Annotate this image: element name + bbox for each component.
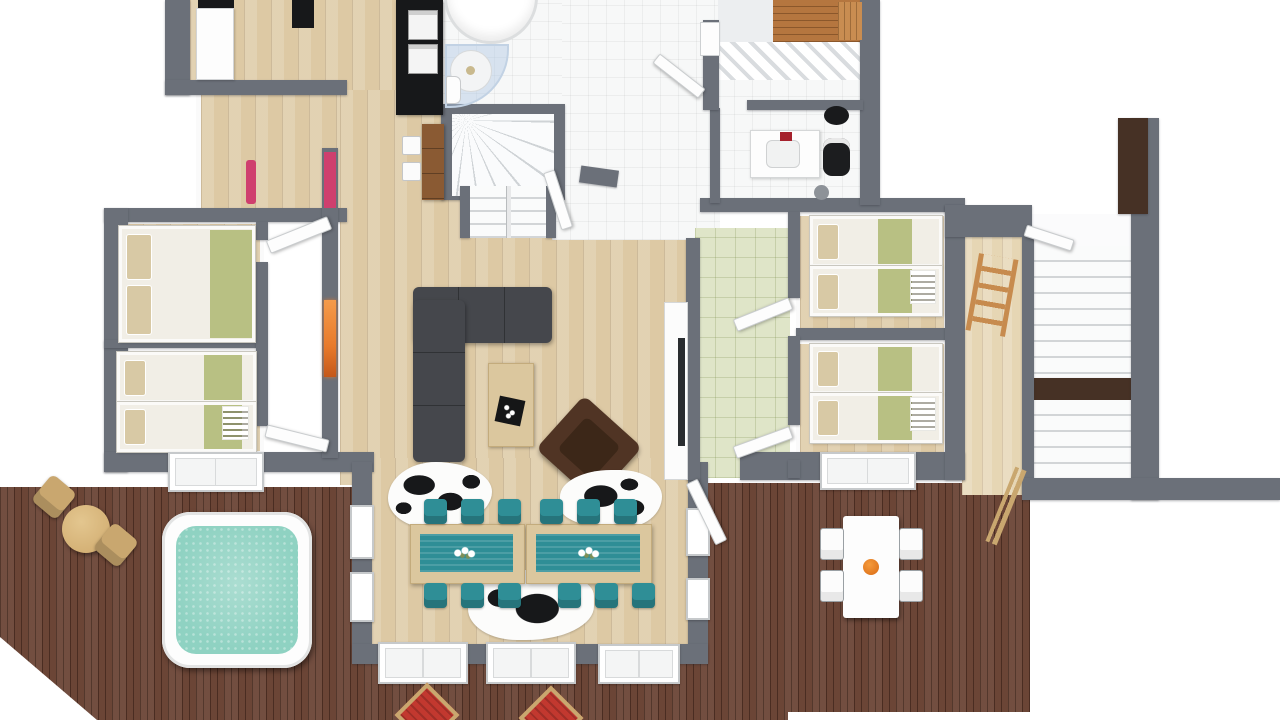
coffee-table-tray <box>495 396 526 427</box>
wall-mudroom-top <box>945 205 1032 237</box>
double-bed-blanket <box>210 230 252 338</box>
wall-pantry-bottom <box>165 80 347 95</box>
wall-rightwing-top <box>700 198 965 212</box>
dining-chair <box>424 499 447 524</box>
sofa-l-vertical <box>413 300 465 462</box>
dining-chair <box>558 583 581 608</box>
wall-bathroom-right-left <box>710 108 720 203</box>
kitchen-dishwasher <box>408 44 438 74</box>
bunk-right-top-blanket-a <box>878 219 912 264</box>
window-bench-right-bedroom <box>820 452 916 490</box>
tv-panel <box>678 338 685 446</box>
pantry-closet <box>196 8 234 80</box>
window-bay-side-right-2 <box>686 578 710 620</box>
bunk-right-top-ladder <box>910 270 936 304</box>
sauna-bench <box>838 2 862 40</box>
soap-red <box>780 132 792 141</box>
bunk-right-bottom-pillow-a <box>817 351 839 387</box>
wall-between-right-bedrooms <box>796 328 962 340</box>
bath-stool <box>814 185 829 200</box>
stair-exit-rail <box>506 186 511 238</box>
black-toilet <box>823 138 850 176</box>
upper-landing-floor <box>718 0 775 42</box>
bar-stool-2 <box>402 162 421 181</box>
entry-hall-floor <box>552 0 720 240</box>
dining-chair <box>577 499 600 524</box>
kitchen-wall-unit <box>292 0 314 28</box>
bunk-right-top-pillow-b <box>817 274 839 310</box>
hot-tub-water <box>176 526 298 654</box>
outdoor-table-bowl <box>863 559 879 575</box>
kitchen-oven <box>408 10 438 40</box>
bunk-right-bottom-blanket-b <box>878 396 912 440</box>
window-bay-dining-2 <box>486 642 576 684</box>
wall-stairs-bottom <box>1022 478 1280 500</box>
outdoor-chair <box>899 570 923 602</box>
winder-steps <box>452 114 554 196</box>
wall-stairs-walnut-top <box>1118 118 1148 214</box>
wall-bedroom-doorjamb-1 <box>256 222 268 240</box>
toilet-top-bath <box>446 76 461 104</box>
bunk-left-top-pillow <box>124 360 146 396</box>
window-bay-dining-3 <box>598 644 680 684</box>
wall-bedroom-doorjamb-2 <box>256 262 268 426</box>
black-basin <box>824 106 849 125</box>
window-bench-left-bedroom <box>168 452 264 492</box>
shower-drain <box>466 66 475 75</box>
bunk-left-top-blanket <box>204 355 242 400</box>
wall-stairs-left <box>1022 237 1034 495</box>
dining-chair <box>461 583 484 608</box>
dining-chair <box>595 583 618 608</box>
dining-chair <box>540 499 563 524</box>
wall-greenhall-left <box>686 238 700 480</box>
floorplan-canvas <box>0 0 1280 720</box>
outdoor-chair <box>899 528 923 560</box>
wall-bedroom1-top <box>104 208 347 222</box>
wall-greenhall-right-c <box>788 460 800 478</box>
stair-exit-wall-left <box>460 186 470 238</box>
stairs-landing-walnut <box>1032 378 1131 400</box>
bunk-left-ladder <box>222 406 249 440</box>
bedroom-left-door-2 <box>264 424 329 452</box>
bunk-right-top-pillow-a <box>817 224 839 260</box>
window-bay-dining-1 <box>378 642 468 684</box>
wall-rightwing-right <box>945 205 965 480</box>
outdoor-chair <box>820 528 844 560</box>
centerpiece-right <box>576 545 602 561</box>
dining-chair <box>498 583 521 608</box>
bunk-right-bottom-ladder <box>910 397 936 431</box>
window-bay-side-left-2 <box>350 572 374 622</box>
bar-table <box>422 124 444 200</box>
dining-chair <box>424 583 447 608</box>
dining-chair <box>461 499 484 524</box>
pink-rug <box>246 160 256 204</box>
bar-stool-1 <box>402 136 421 155</box>
sink-bowl <box>766 140 800 168</box>
centerpiece-left <box>452 545 478 561</box>
sloped-ceiling-area <box>718 42 864 80</box>
bunk-right-bottom-blanket-a <box>878 347 912 391</box>
entry-closet <box>700 22 720 56</box>
wall-greenhall-right-b <box>788 336 800 425</box>
dining-chair <box>614 499 637 524</box>
wall-fireplace <box>324 300 336 377</box>
double-bed-pillow-2 <box>126 285 152 335</box>
wall-bathroom-right-outer <box>860 0 880 205</box>
double-bed-pillow-1 <box>126 234 152 280</box>
cowhide-rug-2 <box>560 470 662 528</box>
wall-greenhall-right-a <box>788 212 800 298</box>
outdoor-chair <box>820 570 844 602</box>
bunk-right-bottom-pillow-b <box>817 400 839 436</box>
wall-art-pink <box>324 152 336 208</box>
window-bay-side-left-1 <box>350 505 374 559</box>
wall-bay-left <box>352 462 372 662</box>
dining-chair <box>498 499 521 524</box>
external-stairs-lower-treads <box>1032 400 1131 490</box>
external-stairs-upper-treads <box>1032 246 1131 380</box>
bunk-left-bottom-pillow <box>124 409 146 445</box>
dining-chair <box>632 583 655 608</box>
bunk-right-top-blanket-b <box>878 269 912 313</box>
